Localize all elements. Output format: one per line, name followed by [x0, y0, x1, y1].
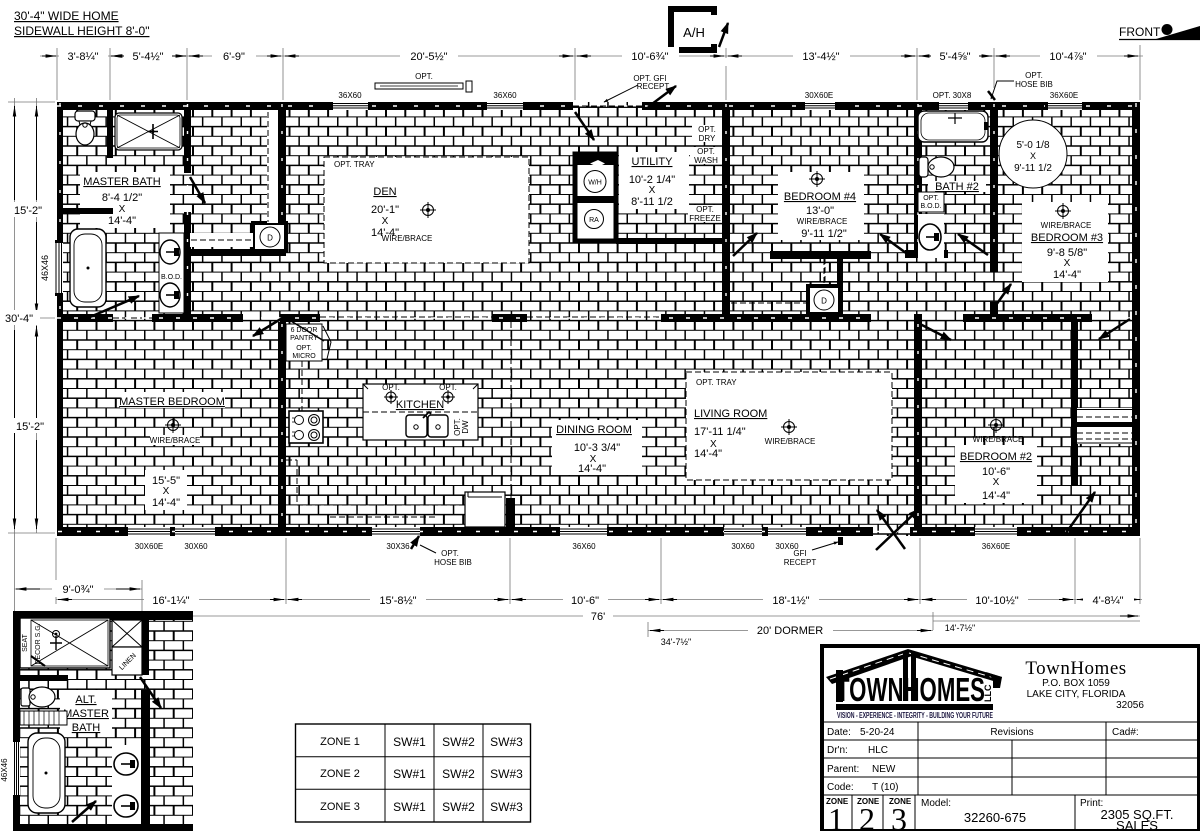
svg-text:NEW: NEW — [872, 764, 896, 775]
svg-text:X: X — [1030, 151, 1036, 161]
svg-text:5-20-24: 5-20-24 — [860, 727, 895, 738]
svg-text:HOSE BIB: HOSE BIB — [434, 558, 472, 567]
svg-text:14'-4": 14'-4" — [108, 215, 136, 227]
svg-text:ZONE 1: ZONE 1 — [320, 736, 360, 748]
svg-text:DEN: DEN — [373, 186, 396, 198]
svg-text:WIRE/BRACE: WIRE/BRACE — [382, 234, 433, 243]
svg-text:SW#3: SW#3 — [490, 800, 523, 814]
svg-text:36X60: 36X60 — [572, 542, 596, 551]
svg-text:BEDROOM #3: BEDROOM #3 — [1031, 232, 1103, 244]
svg-text:HLC: HLC — [868, 745, 888, 756]
svg-text:FREEZE: FREEZE — [689, 214, 721, 223]
svg-text:30'-4" WIDE HOME: 30'-4" WIDE HOME — [14, 9, 119, 23]
svg-text:SALES: SALES — [1116, 818, 1158, 831]
svg-text:13'-0": 13'-0" — [806, 205, 834, 217]
svg-text:30X60E: 30X60E — [805, 91, 833, 100]
svg-text:ALT.: ALT. — [75, 694, 96, 706]
svg-text:13'-4½": 13'-4½" — [802, 51, 839, 63]
svg-text:15'-8½": 15'-8½" — [379, 595, 416, 607]
svg-text:MASTER BEDROOM: MASTER BEDROOM — [119, 396, 225, 408]
svg-text:OPT.: OPT. — [697, 147, 715, 156]
svg-text:TOWNHOMES: TOWNHOMES — [836, 671, 985, 708]
svg-text:SW#3: SW#3 — [490, 767, 523, 781]
svg-text:34'-7½": 34'-7½" — [661, 637, 691, 647]
svg-text:OPT.: OPT. — [296, 345, 312, 352]
svg-text:46X46: 46X46 — [40, 255, 50, 281]
svg-text:OPT. TRAY: OPT. TRAY — [696, 378, 737, 387]
svg-text:15'-2": 15'-2" — [16, 421, 44, 433]
svg-text:5'-0 1/8: 5'-0 1/8 — [1016, 140, 1049, 151]
svg-text:8'-11 1/2: 8'-11 1/2 — [631, 196, 673, 208]
svg-text:P.O. BOX 1059: P.O. BOX 1059 — [1042, 678, 1110, 689]
svg-text:OPT.: OPT. — [1025, 71, 1043, 80]
svg-text:RECEPT: RECEPT — [784, 558, 817, 567]
svg-text:X: X — [382, 216, 389, 227]
svg-text:14'-4": 14'-4" — [152, 497, 180, 509]
svg-text:MICRO: MICRO — [292, 353, 316, 360]
svg-text:5'-4½": 5'-4½" — [132, 51, 163, 63]
svg-text:5'-4⅝": 5'-4⅝" — [939, 51, 970, 63]
svg-text:WIRE/BRACE: WIRE/BRACE — [797, 217, 848, 226]
svg-text:T (10): T (10) — [872, 782, 899, 793]
svg-text:Model:: Model: — [921, 798, 951, 809]
svg-text:OPT.: OPT. — [415, 72, 433, 81]
svg-text:Dr'n:: Dr'n: — [827, 745, 848, 756]
svg-text:SW#1: SW#1 — [393, 735, 426, 749]
svg-text:OPT. 30X8: OPT. 30X8 — [933, 91, 972, 100]
svg-text:X: X — [649, 185, 656, 196]
svg-text:WIRE/BRACE: WIRE/BRACE — [1041, 221, 1092, 230]
svg-text:14'-4": 14'-4" — [694, 448, 722, 460]
svg-text:BATH: BATH — [72, 722, 101, 734]
svg-text:X: X — [163, 486, 170, 497]
svg-text:30'-4": 30'-4" — [5, 313, 33, 325]
svg-text:32260-675: 32260-675 — [964, 810, 1026, 825]
svg-text:16'-1¼": 16'-1¼" — [152, 595, 189, 607]
svg-text:OPT.: OPT. — [698, 125, 716, 134]
svg-text:14'-4": 14'-4" — [578, 463, 606, 475]
svg-text:36X60E: 36X60E — [1050, 91, 1078, 100]
svg-text:20'-1": 20'-1" — [371, 204, 399, 216]
svg-text:SW#1: SW#1 — [393, 767, 426, 781]
svg-text:SW#2: SW#2 — [442, 735, 475, 749]
svg-text:A/H: A/H — [683, 25, 705, 40]
svg-text:9'-0¾": 9'-0¾" — [62, 584, 93, 596]
svg-text:X: X — [993, 477, 1000, 488]
svg-text:14'-7½": 14'-7½" — [945, 623, 975, 633]
svg-text:DRY: DRY — [699, 134, 716, 143]
svg-text:D: D — [821, 297, 827, 306]
svg-text:Date:: Date: — [827, 727, 851, 738]
svg-text:RECEPT: RECEPT — [637, 82, 670, 91]
svg-text:46X46: 46X46 — [0, 758, 9, 782]
svg-text:2: 2 — [859, 801, 875, 831]
svg-text:14'-4": 14'-4" — [1053, 269, 1081, 281]
svg-text:10'-6¾": 10'-6¾" — [631, 51, 668, 63]
svg-text:X: X — [1064, 258, 1071, 269]
svg-text:SW#2: SW#2 — [442, 800, 475, 814]
svg-text:PANTRY: PANTRY — [290, 335, 318, 342]
svg-text:B.O.D.: B.O.D. — [161, 274, 182, 281]
svg-text:9'-11 1/2": 9'-11 1/2" — [801, 228, 847, 240]
svg-text:WIRE/BRACE: WIRE/BRACE — [150, 436, 201, 445]
svg-text:DW: DW — [461, 420, 470, 434]
svg-text:OPT.: OPT. — [923, 195, 939, 202]
svg-text:10'-6": 10'-6" — [571, 595, 599, 607]
svg-text:BEDROOM #4: BEDROOM #4 — [784, 191, 856, 203]
svg-text:36X60: 36X60 — [338, 91, 362, 100]
svg-text:WASH: WASH — [694, 156, 718, 165]
svg-text:SW#2: SW#2 — [442, 767, 475, 781]
svg-text:30X60E: 30X60E — [135, 542, 163, 551]
svg-text:3'-8¼": 3'-8¼" — [67, 51, 98, 63]
svg-text:LAKE CITY, FLORIDA: LAKE CITY, FLORIDA — [1027, 689, 1126, 700]
svg-text:ZONE 2: ZONE 2 — [320, 768, 360, 780]
svg-text:14'-4": 14'-4" — [982, 490, 1010, 502]
svg-text:32056: 32056 — [1116, 700, 1144, 711]
svg-text:Cad#:: Cad#: — [1112, 727, 1139, 738]
svg-text:DINING ROOM: DINING ROOM — [556, 424, 632, 436]
svg-text:B.O.D.: B.O.D. — [920, 203, 941, 210]
svg-text:4'-8¼": 4'-8¼" — [1092, 595, 1123, 607]
svg-text:18'-1½": 18'-1½" — [772, 595, 809, 607]
svg-text:76': 76' — [591, 611, 605, 623]
svg-text:OPT. TRAY: OPT. TRAY — [334, 160, 375, 169]
svg-text:10'-3 3/4": 10'-3 3/4" — [574, 442, 620, 454]
svg-text:SIDEWALL HEIGHT 8'-0": SIDEWALL HEIGHT 8'-0" — [14, 24, 149, 38]
svg-text:30X60: 30X60 — [731, 542, 755, 551]
svg-text:30X36: 30X36 — [386, 542, 410, 551]
svg-text:LIVING ROOM: LIVING ROOM — [694, 408, 767, 420]
svg-text:15'-2": 15'-2" — [14, 205, 42, 217]
svg-text:SEAT: SEAT — [22, 633, 29, 651]
svg-text:MASTER BATH: MASTER BATH — [83, 176, 160, 188]
svg-text:17'-11 1/4": 17'-11 1/4" — [694, 426, 746, 438]
svg-text:FRONT: FRONT — [1119, 25, 1161, 39]
svg-text:D: D — [267, 234, 273, 243]
svg-text:SW#1: SW#1 — [393, 800, 426, 814]
svg-text:W/H: W/H — [588, 180, 602, 187]
svg-text:SW#3: SW#3 — [490, 735, 523, 749]
svg-text:10'-10½": 10'-10½" — [975, 595, 1018, 607]
svg-text:WIRE/BRACE: WIRE/BRACE — [973, 435, 1024, 444]
svg-text:BEDROOM #2: BEDROOM #2 — [960, 451, 1032, 463]
svg-text:36X60E: 36X60E — [982, 542, 1010, 551]
svg-text:Parent:: Parent: — [827, 764, 859, 775]
svg-text:20'-5½": 20'-5½" — [410, 51, 447, 63]
svg-text:HOSE BIB: HOSE BIB — [1015, 80, 1053, 89]
svg-text:LLC: LLC — [983, 684, 993, 702]
svg-text:1: 1 — [828, 801, 844, 831]
svg-text:MASTER: MASTER — [63, 708, 109, 720]
svg-text:OPT.: OPT. — [696, 205, 714, 214]
svg-text:30X60: 30X60 — [184, 542, 208, 551]
svg-text:6'-9": 6'-9" — [223, 51, 245, 63]
svg-text:ZONE 3: ZONE 3 — [320, 801, 360, 813]
svg-text:9'-11 1/2: 9'-11 1/2 — [1014, 163, 1052, 174]
svg-text:KITCHEN: KITCHEN — [396, 399, 444, 411]
svg-text:20' DORMER: 20' DORMER — [757, 625, 823, 637]
svg-text:BATH #2: BATH #2 — [935, 181, 979, 193]
svg-text:UTILITY: UTILITY — [632, 156, 674, 168]
svg-text:3: 3 — [891, 801, 907, 831]
svg-text:8'-4 1/2": 8'-4 1/2" — [102, 192, 142, 204]
svg-text:GFI: GFI — [793, 549, 806, 558]
svg-text:10'-4⅞": 10'-4⅞" — [1049, 51, 1086, 63]
svg-text:VISION - EXPERIENCE - INTEGRIT: VISION - EXPERIENCE - INTEGRITY - BUILDI… — [837, 711, 993, 720]
svg-text:OPT.: OPT. — [441, 549, 459, 558]
svg-text:36X60: 36X60 — [493, 91, 517, 100]
svg-text:Code:: Code: — [827, 782, 854, 793]
svg-text:Revisions: Revisions — [990, 727, 1033, 738]
svg-text:X: X — [119, 204, 126, 215]
svg-text:RA: RA — [589, 217, 599, 224]
svg-text:WIRE/BRACE: WIRE/BRACE — [765, 437, 816, 446]
svg-text:TownHomes: TownHomes — [1025, 658, 1126, 679]
